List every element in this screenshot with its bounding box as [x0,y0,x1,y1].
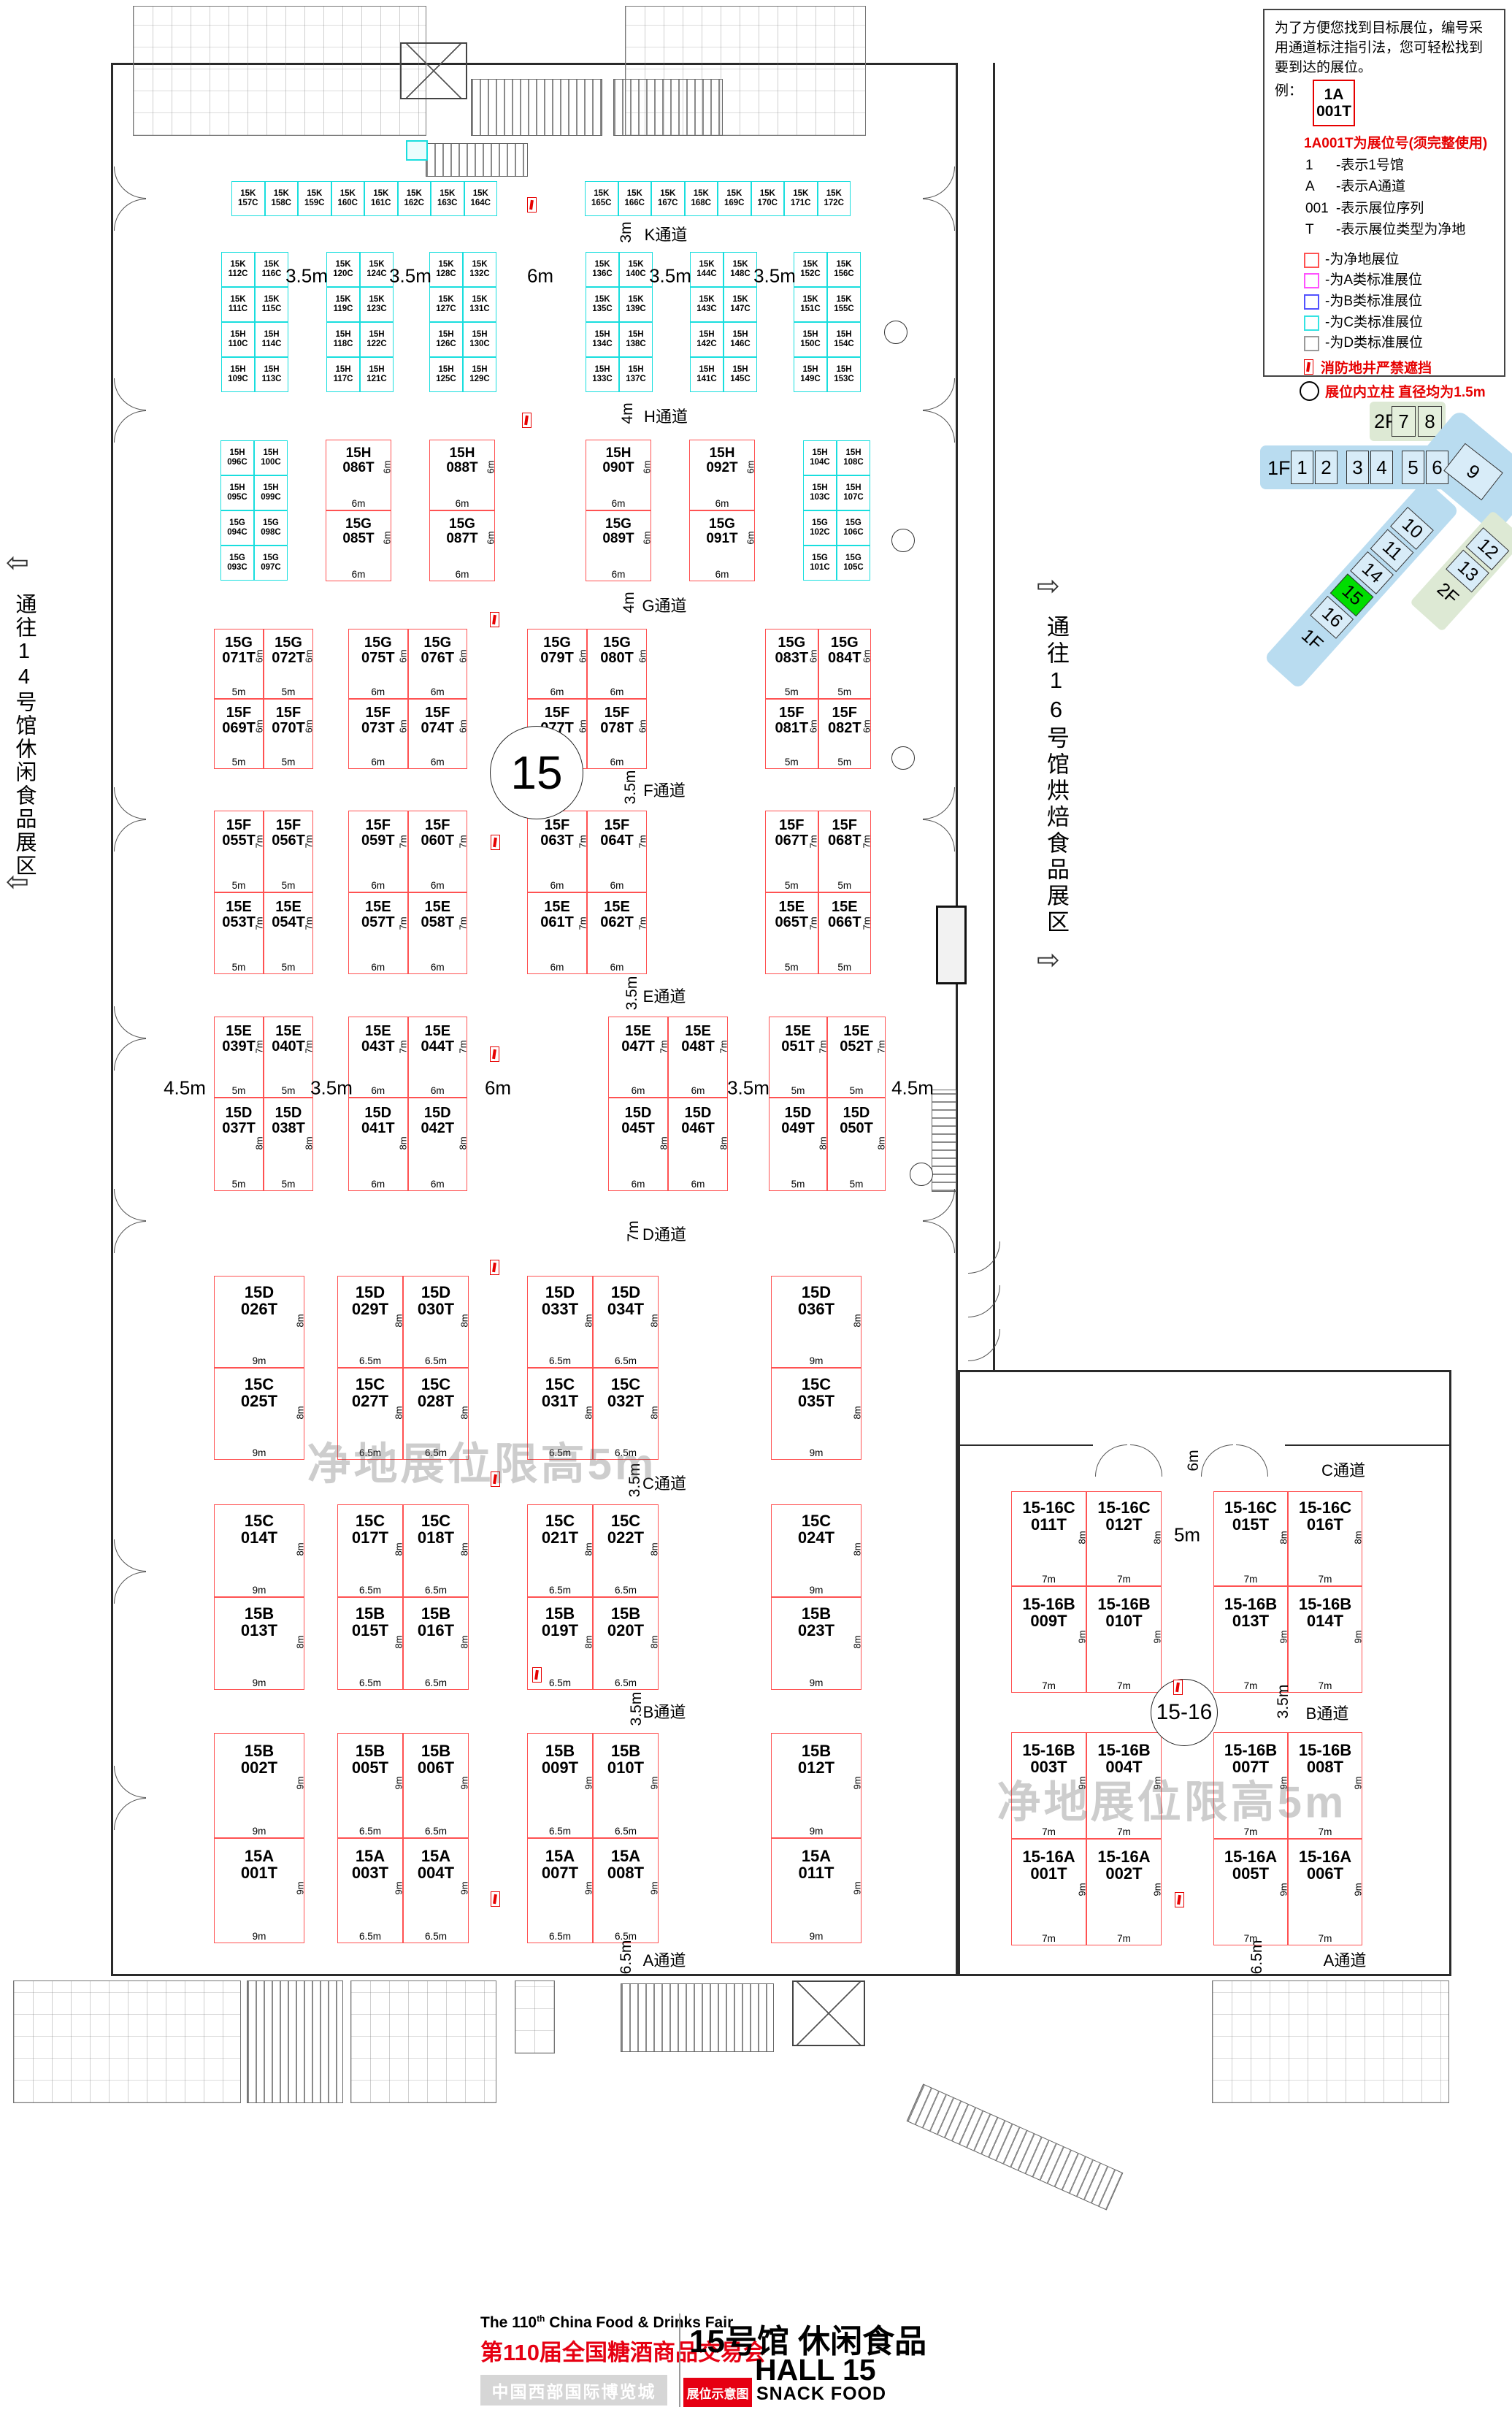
stairs-bottom-2 [621,1983,774,2052]
booth-15k-116c: 15K116C [255,252,288,287]
fire-hydrant-icon [527,197,537,213]
booth-15d-033t: 15D033T8m6.5m [527,1276,593,1368]
pillar-circle-icon [891,529,915,552]
stairs-right-wall [932,1090,956,1192]
fire-hydrant-icon [522,413,531,428]
wing-aisle-dim-C: 6m [1185,1450,1202,1471]
booth-15f-068t: 15F068T7m5m [818,811,872,892]
arrow-to-hall14-bottom-icon: ⇦ [6,865,29,898]
booth-15k-124c: 15K124C [360,252,394,287]
fire-hydrant-icon [491,1891,500,1907]
legend-pillar-note: 展位内立柱 直径均为1.5m [1325,381,1486,401]
booth-15e-065t: 15E065T7m5m [765,892,818,974]
booth-15e-043t: 15E043T7m6m [348,1017,408,1098]
footer: The 110th China Food & Drinks Fair 第110届… [460,2308,1015,2415]
legend-code-item: T-表示展位类型为净地 [1305,219,1497,240]
right-wing-inner-wall [958,1444,1093,1446]
booth-15b-023t: 15B023T8m9m [771,1597,861,1690]
stairs-bottom-1 [247,1980,343,2103]
booth-15k-120c: 15K120C [326,252,360,287]
booth-15k-165c: 15K165C [585,181,618,216]
fire-hydrant-icon [1175,1892,1184,1907]
booth-15h-100c: 15H100C [254,440,288,475]
booth-15d-046t: 15D046T8m6m [668,1098,728,1191]
booth-15a-008t: 15A008T9m6.5m [593,1838,659,1943]
booth-15h-090t: 15H090T6m6m [586,440,651,510]
booth-15d-037t: 15D037T8m5m [214,1098,264,1191]
booth-15g-079t: 15G079T6m6m [527,629,587,699]
booth-15g-076t: 15G076T6m6m [408,629,468,699]
booth-15k-159c: 15K159C [298,181,331,216]
booth-15a-003t: 15A003T9m6.5m [337,1838,403,1943]
booth-15b-016t: 15B016T8m6.5m [403,1597,469,1690]
footer-divider [679,2313,680,2407]
booth-15d-050t: 15D050T8m5m [827,1098,886,1191]
booth-15c-014t: 15C014T8m9m [214,1504,304,1597]
booth-15-16a-002t: 15-16A002T9m7m [1086,1839,1162,1945]
fire-hydrant-icon [491,1471,500,1487]
booth-15k-168c: 15K168C [685,181,718,216]
booth-15h-149c: 15H149C [794,357,827,392]
booth-15-16a-001t: 15-16A001T9m7m [1011,1839,1086,1945]
map-tag-badge: 展位示意图 [683,2378,752,2407]
booth-15e-058t: 15E058T7m6m [408,892,468,974]
booth-15h-146c: 15H146C [724,322,757,357]
aisle-label-E: E通道 [643,984,686,1007]
booth-15f-063t: 15F063T7m6m [527,811,587,892]
booth-15g-084t: 15G084T6m5m [818,629,872,699]
booth-15k-139c: 15K139C [619,287,653,322]
booth-15h-141c: 15H141C [690,357,724,392]
booth-15k-155c: 15K155C [827,287,861,322]
door-arc-icon [968,1285,1000,1317]
fire-hydrant-icon [490,1046,499,1062]
legend-code-item: 001-表示展位序列 [1305,198,1497,219]
booth-15g-080t: 15G080T6m6m [587,629,647,699]
booth-15b-013t: 15B013T8m9m [214,1597,304,1690]
booth-15h-110c: 15H110C [221,322,255,357]
booth-15k-161c: 15K161C [364,181,398,216]
navigator-hall-1: 1 [1291,451,1313,484]
booth-15g-089t: 15G089T6m6m [586,510,651,581]
gap-dim-label: 3.5m [753,265,796,288]
booth-15a-001t: 15A001T9m9m [214,1838,304,1943]
legend-fire-note: 消防地井严禁遮挡 [1321,357,1432,377]
gap-dim-label: 3.5m [649,265,691,288]
booth-15b-002t: 15B002T9m9m [214,1733,304,1838]
restroom-block-bottom-2 [350,1980,496,2103]
booth-15h-121c: 15H121C [360,357,394,392]
booth-15c-031t: 15C031T8m6.5m [527,1368,593,1460]
booth-15k-144c: 15K144C [690,252,724,287]
legend-example-line2: 001T [1316,103,1351,120]
gap-dim-label: 3.5m [727,1077,770,1100]
legend-fire-row: 消防地井严禁遮挡 [1304,357,1497,377]
booth-15g-093c: 15G093C [220,546,254,581]
booth-15h-109c: 15H109C [221,357,255,392]
booth-15g-072t: 15G072T6m5m [264,629,313,699]
booth-15f-074t: 15F074T6m6m [408,699,468,769]
booth-15g-106c: 15G106C [837,510,870,546]
booth-15h-118c: 15H118C [326,322,360,357]
booth-15b-006t: 15B006T9m6.5m [403,1733,469,1838]
booth-15c-021t: 15C021T8m6.5m [527,1504,593,1597]
booth-15e-044t: 15E044T7m6m [408,1017,468,1098]
booth-15g-094c: 15G094C [220,510,254,546]
aisle-label-D: D通道 [642,1222,686,1245]
booth-15b-005t: 15B005T9m6.5m [337,1733,403,1838]
booth-15h-092t: 15H092T6m6m [689,440,755,510]
booth-15d-042t: 15D042T8m6m [408,1098,468,1191]
hall-circle-15-16-label: 15-16 [1156,1700,1213,1725]
booth-15f-070t: 15F070T6m5m [264,699,313,769]
booth-15d-045t: 15D045T8m6m [608,1098,668,1191]
booth-15-16b-013t: 15-16B013T9m7m [1213,1586,1288,1693]
navigator-hall-2: 2 [1315,451,1338,484]
restroom-block-bottom-right [1212,1980,1449,2103]
booth-15e-061t: 15E061T7m6m [527,892,587,974]
legend-class-list: -为净地展位-为A类标准展位-为B类标准展位-为C类标准展位-为D类标准展位 [1275,251,1497,353]
freight-elevator [936,906,967,984]
legend-intro-line2: 用通道标注指引法，您可轻松找到 [1275,39,1497,58]
aisle-label-K: K通道 [645,222,688,245]
legend-class-item: -为D类标准展位 [1304,334,1497,353]
legend-example-label: 例： [1275,80,1302,99]
escalator-diagonal [907,2083,1124,2210]
booth-15b-009t: 15B009T9m6.5m [527,1733,593,1838]
booth-15g-085t: 15G085T6m6m [326,510,391,581]
booth-15k-169c: 15K169C [718,181,751,216]
booth-15h-129c: 15H129C [463,357,496,392]
right-corridor-wall [993,63,995,1370]
legend-pillar-row: 展位内立柱 直径均为1.5m [1300,381,1497,401]
booth-15c-028t: 15C028T8m6.5m [403,1368,469,1460]
booth-15f-056t: 15F056T7m5m [264,811,313,892]
pillar-circle-icon [891,746,915,770]
booth-15e-066t: 15E066T7m5m [818,892,872,974]
booth-15h-154c: 15H154C [827,322,861,357]
fire-hydrant-icon [491,835,500,850]
booth-15k-152c: 15K152C [794,252,827,287]
stairs-top-1 [471,79,602,136]
booth-15e-048t: 15E048T7m6m [668,1017,728,1098]
booth-15-16c-016t: 15-16C016T8m7m [1288,1491,1362,1586]
booth-15-16b-004t: 15-16B004T9m7m [1086,1732,1162,1839]
booth-15k-162c: 15K162C [398,181,431,216]
legend-example-booth: 1A 001T [1313,80,1355,126]
gap-dim-label: 5m [1174,1524,1200,1547]
stairs-top-2 [613,79,723,136]
pillar-circle-icon [884,321,907,344]
booth-15b-012t: 15B012T9m9m [771,1733,861,1838]
booth-15k-167c: 15K167C [651,181,685,216]
booth-15f-073t: 15F073T6m6m [348,699,408,769]
booth-15e-040t: 15E040T7m5m [264,1017,313,1098]
booth-15h-108c: 15H108C [837,440,870,475]
booth-15k-148c: 15K148C [724,252,757,287]
booth-15d-034t: 15D034T8m6.5m [593,1276,659,1368]
booth-15-16b-009t: 15-16B009T9m7m [1011,1586,1086,1693]
aisle-dim-C: 3.5m [626,1463,644,1498]
fire-hydrant-icon [532,1667,542,1683]
booth-15c-017t: 15C017T8m6.5m [337,1504,403,1597]
booth-15e-062t: 15E062T7m6m [587,892,647,974]
elevator-bottom [792,1980,865,2046]
wing-aisle-label-C: C通道 [1321,1458,1365,1481]
booth-15h-153c: 15H153C [827,357,861,392]
booth-15d-030t: 15D030T8m6.5m [403,1276,469,1368]
elevator-shaft-icon [400,42,467,99]
booth-15g-097c: 15G097C [254,546,288,581]
restroom-block-top-left [133,6,426,136]
wing-aisle-dim-B: 3.5m [1275,1685,1292,1719]
booth-15a-004t: 15A004T9m6.5m [403,1838,469,1943]
booth-15-16a-006t: 15-16A006T9m7m [1288,1839,1362,1945]
booth-15h-086t: 15H086T6m6m [326,440,391,510]
aisle-dim-G: 4m [621,592,638,613]
booth-15-16b-010t: 15-16B010T9m7m [1086,1586,1162,1693]
booth-15k-123c: 15K123C [360,287,394,322]
booth-15h-134c: 15H134C [586,322,619,357]
booth-15c-025t: 15C025T8m9m [214,1368,304,1460]
aisle-dim-A: 6.5m [618,1940,635,1975]
wing-aisle-dim-A: 6.5m [1248,1940,1266,1975]
legend-class-item: -为C类标准展位 [1304,314,1497,332]
booth-15e-057t: 15E057T7m6m [348,892,408,974]
booth-15k-147c: 15K147C [724,287,757,322]
booth-15h-137c: 15H137C [619,357,653,392]
booth-15h-107c: 15H107C [837,475,870,510]
wing-aisle-label-B: B通道 [1306,1701,1349,1724]
booth-15-16c-012t: 15-16C012T8m7m [1086,1491,1162,1586]
legend-class-item: -为A类标准展位 [1304,272,1497,290]
legend-example-line1: 1A [1324,86,1344,103]
booth-15f-067t: 15F067T7m5m [765,811,818,892]
legend-code-item: A-表示A通道 [1305,176,1497,197]
booth-15g-101c: 15G101C [803,546,837,581]
booth-15h-145c: 15H145C [724,357,757,392]
booth-15-16b-003t: 15-16B003T9m7m [1011,1732,1086,1839]
hall-subtitle-en: SNACK FOOD [756,2384,886,2405]
booth-15h-104c: 15H104C [803,440,837,475]
gap-dim-label: 3.5m [310,1077,353,1100]
side-label-left: 通往14号馆休闲食品展区 [9,593,39,878]
booth-15k-164c: 15K164C [464,181,498,216]
booth-15g-091t: 15G091T6m6m [689,510,755,581]
booth-15-16b-007t: 15-16B007T9m7m [1213,1732,1288,1839]
booth-15d-036t: 15D036T8m9m [771,1276,861,1368]
aisle-dim-D: 7m [625,1220,642,1241]
booth-15b-020t: 15B020T8m6.5m [593,1597,659,1690]
booth-15k-171c: 15K171C [784,181,818,216]
stairs-top-3 [426,143,528,177]
booth-15e-054t: 15E054T7m5m [264,892,313,974]
booth-15k-166c: 15K166C [618,181,652,216]
booth-15b-015t: 15B015T8m6.5m [337,1597,403,1690]
booth-15f-064t: 15F064T7m6m [587,811,647,892]
arrow-to-hall16-bottom-icon: ⇨ [1037,944,1060,976]
gap-dim-label: 3.5m [389,265,431,288]
navigator-1f-label: 1F [1267,457,1291,480]
hall-title-en: HALL 15 [755,2353,876,2387]
booth-15h-125c: 15H125C [429,357,463,392]
booth-15d-038t: 15D038T8m5m [264,1098,313,1191]
service-box-icon [406,140,428,161]
navigator-hall-3: 3 [1346,451,1369,484]
booth-15k-157c: 15K157C [231,181,265,216]
fire-hydrant-icon [490,612,499,627]
booth-15c-027t: 15C027T8m6.5m [337,1368,403,1460]
booth-15c-035t: 15C035T8m9m [771,1368,861,1460]
booth-15h-095c: 15H095C [220,475,254,510]
booth-15c-024t: 15C024T8m9m [771,1504,861,1597]
booth-15g-105c: 15G105C [837,546,870,581]
venue-name: 中国西部国际博览城 [480,2375,667,2406]
gap-dim-label: 4.5m [891,1077,934,1100]
legend-class-item: -为净地展位 [1304,251,1497,269]
booth-15f-069t: 15F069T6m5m [214,699,264,769]
legend-code-list: 1-表示1号馆A-表示A通道001-表示展位序列T-表示展位类型为净地 [1275,155,1497,241]
booth-15k-158c: 15K158C [265,181,299,216]
booth-15d-041t: 15D041T8m6m [348,1098,408,1191]
booth-15k-140c: 15K140C [619,252,653,287]
fire-hydrant-icon [1173,1680,1183,1695]
booth-15k-160c: 15K160C [331,181,365,216]
booth-15h-114c: 15H114C [255,322,288,357]
booth-15f-059t: 15F059T7m6m [348,811,408,892]
legend-intro-line1: 为了方便您找到目标展位，编号采 [1275,19,1497,39]
aisle-dim-E: 3.5m [623,976,641,1011]
navigator-hall-7: 7 [1392,406,1416,437]
booth-15-16a-005t: 15-16A005T9m7m [1213,1839,1288,1945]
booth-15-16b-008t: 15-16B008T9m7m [1288,1732,1362,1839]
booth-15g-083t: 15G083T6m5m [765,629,818,699]
hall-circle-15-16: 15-16 [1151,1679,1218,1746]
booth-15-16c-011t: 15-16C011T8m7m [1011,1491,1086,1586]
booth-15e-052t: 15E052T7m5m [827,1017,886,1098]
booth-15c-018t: 15C018T8m6.5m [403,1504,469,1597]
booth-15h-088t: 15H088T6m6m [429,440,495,510]
booth-15-16b-014t: 15-16B014T9m7m [1288,1586,1362,1693]
aisle-label-G: G通道 [642,593,686,616]
aisle-dim-K: 3m [618,221,635,242]
booth-15k-128c: 15K128C [429,252,463,287]
pillar-circle-icon [910,1163,933,1186]
aisle-label-F: F通道 [643,778,685,801]
side-label-right: 通往16号馆烘焙食品展区 [1040,615,1072,936]
booth-15h-117c: 15H117C [326,357,360,392]
gap-dim-label: 4.5m [164,1077,206,1100]
booth-15h-126c: 15H126C [429,322,463,357]
booth-15f-060t: 15F060T7m6m [408,811,468,892]
booth-15f-082t: 15F082T6m5m [818,699,872,769]
booth-15g-098c: 15G098C [254,510,288,546]
booth-15c-022t: 15C022T8m6.5m [593,1504,659,1597]
booth-15h-122c: 15H122C [360,322,394,357]
booth-15a-011t: 15A011T9m9m [771,1838,861,1943]
booth-15e-053t: 15E053T7m5m [214,892,264,974]
booth-15a-007t: 15A007T9m6.5m [527,1838,593,1943]
booth-15k-136c: 15K136C [586,252,619,287]
booth-15k-143c: 15K143C [690,287,724,322]
booth-15k-151c: 15K151C [794,287,827,322]
fire-hydrant-icon [490,1260,499,1275]
booth-15c-032t: 15C032T8m6.5m [593,1368,659,1460]
booth-15d-049t: 15D049T8m5m [769,1098,827,1191]
aisle-label-H: H通道 [644,404,688,427]
gap-dim-label: 6m [527,265,553,288]
aisle-dim-F: 3.5m [622,770,640,805]
booth-15k-131c: 15K131C [463,287,496,322]
booth-15f-055t: 15F055T7m5m [214,811,264,892]
legend-class-item: -为B类标准展位 [1304,293,1497,311]
booth-15h-138c: 15H138C [619,322,653,357]
pillar-circle-icon [1300,381,1319,401]
right-wing-inner-wall2 [1285,1444,1451,1446]
booth-15k-115c: 15K115C [255,287,288,322]
booth-15h-150c: 15H150C [794,322,827,357]
booth-15b-010t: 15B010T9m6.5m [593,1733,659,1838]
booth-15g-071t: 15G071T6m5m [214,629,264,699]
booth-15g-087t: 15G087T6m6m [429,510,495,581]
fire-hydrant-icon [1304,359,1313,375]
booth-15k-112c: 15K112C [221,252,255,287]
booth-15g-075t: 15G075T6m6m [348,629,408,699]
wing-aisle-label-A: A通道 [1324,1948,1367,1971]
floor-plan-hall15: ⇦ 通往14号馆休闲食品展区 ⇦ ⇨ 通往16号馆烘焙食品展区 ⇨ 净地展位限高… [0,0,1512,2415]
navigator-hall-5: 5 [1402,451,1424,484]
gap-dim-label: 6m [485,1077,511,1100]
booth-15-16c-015t: 15-16C015T8m7m [1213,1491,1288,1586]
booth-15k-127c: 15K127C [429,287,463,322]
booth-15k-132c: 15K132C [463,252,496,287]
booth-15e-039t: 15E039T7m5m [214,1017,264,1098]
booth-15g-102c: 15G102C [803,510,837,546]
legend-intro-line3: 要到达的展位。 [1275,58,1497,78]
booth-15k-156c: 15K156C [827,252,861,287]
aisle-label-A: A通道 [643,1948,686,1971]
booth-15k-172c: 15K172C [818,181,851,216]
booth-15k-163c: 15K163C [431,181,464,216]
hall-circle-15: 15 [490,726,583,819]
booth-15k-135c: 15K135C [586,287,619,322]
door-arc-icon [968,1241,1000,1274]
booth-15d-029t: 15D029T8m6.5m [337,1276,403,1368]
booth-15e-047t: 15E047T7m6m [608,1017,668,1098]
aisle-label-B: B通道 [643,1699,686,1723]
aisle-dim-H: 4m [619,402,637,424]
booth-15h-130c: 15H130C [463,322,496,357]
booth-15f-081t: 15F081T6m5m [765,699,818,769]
arrow-to-hall14-top-icon: ⇦ [6,546,29,579]
booth-15e-051t: 15E051T7m5m [769,1017,827,1098]
navigator-hall-4: 4 [1370,451,1393,484]
booth-15h-099c: 15H099C [254,475,288,510]
aisle-label-C: C通道 [642,1471,686,1494]
booth-15k-111c: 15K111C [221,287,255,322]
aisle-dim-B: 3.5m [628,1692,645,1726]
legend-panel: 为了方便您找到目标展位，编号采 用通道标注指引法，您可轻松找到 要到达的展位。 … [1263,9,1505,377]
legend-code-note: 1A001T为展位号(须完整使用) [1304,132,1497,152]
arrow-to-hall16-top-icon: ⇨ [1037,570,1060,602]
booth-15k-170c: 15K170C [751,181,785,216]
booth-15h-142c: 15H142C [690,322,724,357]
navigator-hall-9-label: 9 [1462,459,1484,483]
booth-15h-096c: 15H096C [220,440,254,475]
booth-15k-119c: 15K119C [326,287,360,322]
legend-code-item: 1-表示1号馆 [1305,155,1497,176]
facility-bottom-3 [515,1980,555,2054]
